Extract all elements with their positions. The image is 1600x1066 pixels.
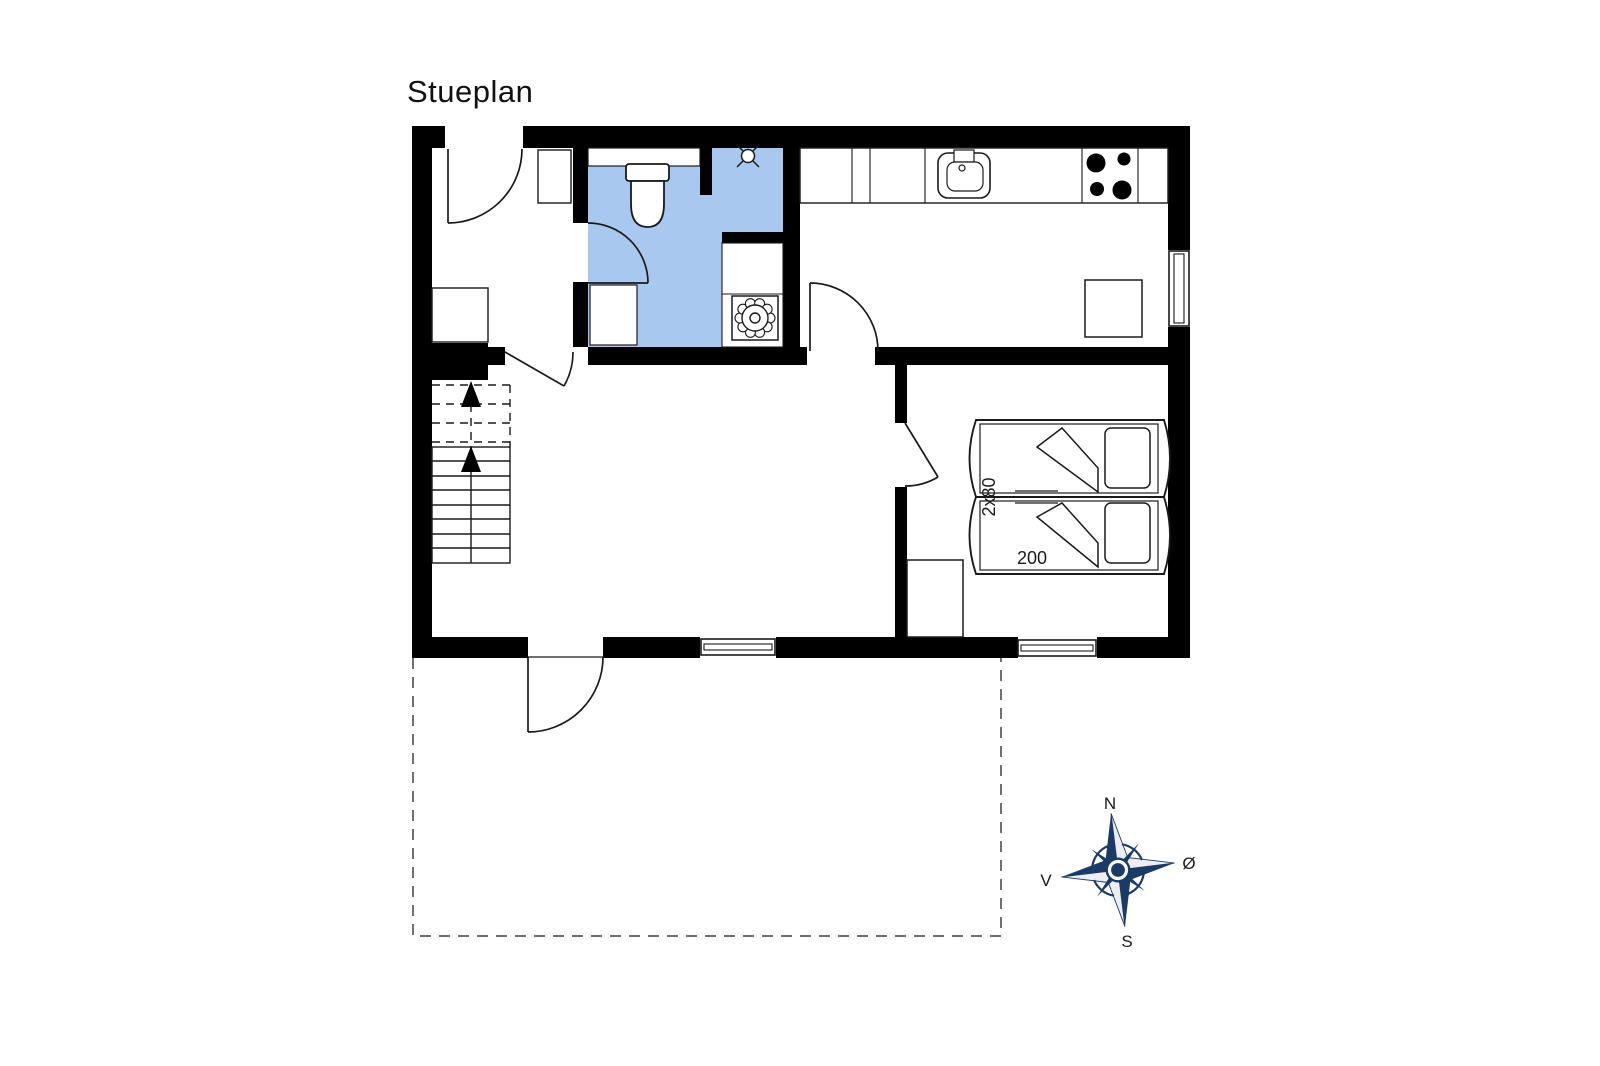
wall-segment xyxy=(1168,327,1190,658)
window-glass xyxy=(1021,645,1093,651)
wall-segment xyxy=(722,232,783,243)
window-glass xyxy=(704,644,772,650)
wall-segment xyxy=(895,365,907,423)
bed-width-label: 2x80 xyxy=(979,477,999,516)
bed-length-label: 200 xyxy=(1017,548,1047,568)
wall-segment xyxy=(875,347,1168,365)
wall-segment xyxy=(700,148,712,195)
wall-segment xyxy=(1097,637,1190,658)
floorplan-page: Stueplan xyxy=(0,0,1600,1066)
wall-segment xyxy=(412,343,488,380)
washer-hub xyxy=(750,313,760,323)
wall-segment xyxy=(523,126,1190,148)
washing-machine-icon xyxy=(732,296,778,340)
compass-rose: N Ø S V xyxy=(1040,794,1195,951)
wall-segment xyxy=(603,637,700,658)
wall-segment xyxy=(1168,126,1190,250)
sink-drain xyxy=(959,165,965,171)
hall-closet xyxy=(538,150,571,203)
toilet-icon xyxy=(626,164,669,227)
wall-segment xyxy=(573,282,588,347)
entrance-door-swing xyxy=(448,149,522,223)
walls xyxy=(412,126,1190,658)
wall-segment xyxy=(895,487,907,637)
kitchen-table xyxy=(1085,280,1142,337)
kitchen-door-swing xyxy=(810,283,878,351)
compass-label-north: N xyxy=(1104,794,1116,813)
window-kitchen xyxy=(1169,251,1189,326)
wall-segment xyxy=(588,347,807,365)
wall-segment xyxy=(412,126,432,658)
terrace-door-swing xyxy=(528,657,603,732)
toilet-bowl xyxy=(631,181,664,227)
wall-segment xyxy=(776,637,1018,658)
bathroom-cabinet xyxy=(590,285,637,345)
kitchen-sink-icon xyxy=(938,150,990,198)
window-glass xyxy=(1174,254,1184,323)
compass-label-south: S xyxy=(1121,932,1132,951)
window-living-room xyxy=(701,639,775,655)
wall-segment xyxy=(412,637,528,658)
compass-label-east: Ø xyxy=(1182,854,1195,873)
hall-door-leaf xyxy=(505,352,564,386)
burner xyxy=(1087,154,1106,173)
wall-segment xyxy=(573,148,588,223)
hall-cabinet xyxy=(432,288,488,342)
terrace-outline xyxy=(413,658,1001,936)
bedroom: 2x80 200 xyxy=(907,420,1170,637)
window-bedroom xyxy=(1018,640,1096,656)
toilet-tank xyxy=(626,164,669,181)
kitchen xyxy=(800,148,1168,337)
burner xyxy=(1118,153,1131,166)
hall xyxy=(432,150,571,342)
pillow xyxy=(1105,503,1150,563)
shower-head xyxy=(742,150,755,163)
double-bed-icon xyxy=(970,420,1171,574)
compass-star xyxy=(1054,806,1181,933)
burner xyxy=(1090,182,1104,196)
hall-door-swing xyxy=(564,352,573,386)
sink-faucet-base xyxy=(954,150,974,162)
pillow xyxy=(1105,428,1150,488)
burner xyxy=(1113,181,1132,200)
washer-closet xyxy=(722,243,783,347)
bedroom-door-leaf xyxy=(905,423,938,477)
floorplan-drawing: 2x80 200 xyxy=(0,0,1600,1066)
wall-segment xyxy=(783,148,800,347)
stairs xyxy=(432,381,510,563)
compass-label-west: V xyxy=(1040,871,1052,890)
bedroom-wardrobe xyxy=(907,560,963,637)
bedroom-door-swing xyxy=(905,477,938,486)
